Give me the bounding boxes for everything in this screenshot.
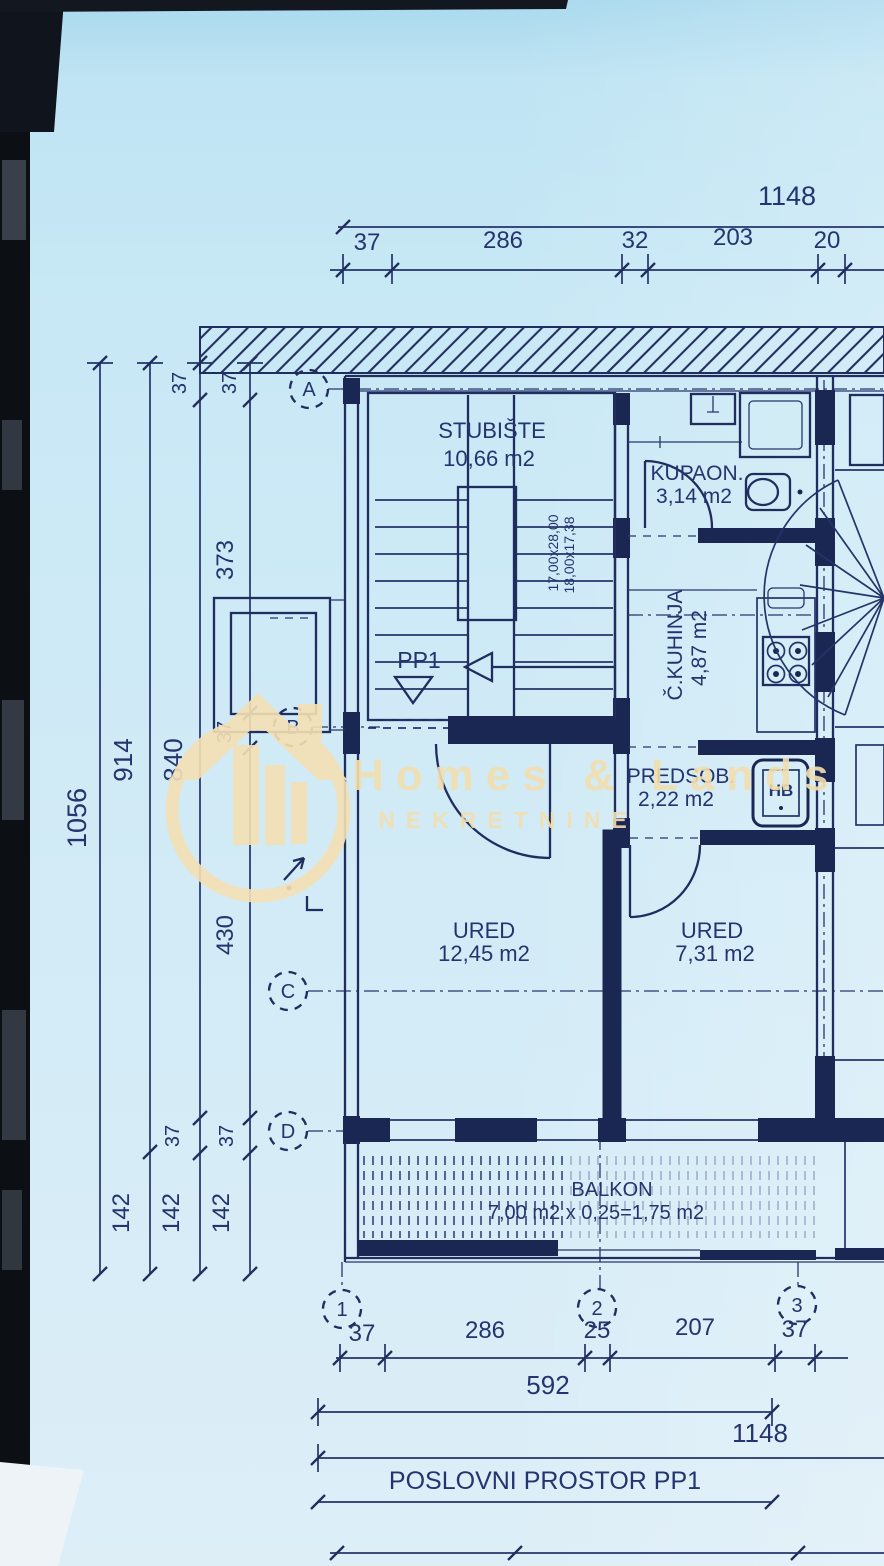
- dim-top-seg-203: 203: [713, 224, 753, 251]
- dim-bottom-1148: 1148: [732, 1418, 788, 1448]
- room-area-bathroom: 3,14 m2: [656, 485, 732, 508]
- watermark-logo-building: [265, 765, 285, 845]
- dim-bottom-seg-286: 286: [465, 1317, 505, 1344]
- stair-note-2: 18,00x17,38: [561, 516, 577, 593]
- dim-left-37: 37: [162, 1125, 184, 1147]
- wall-bathroom-bottom: [698, 528, 817, 543]
- grid-label-D: D: [281, 1121, 295, 1143]
- dim-left-total: 1056: [62, 788, 92, 848]
- dim-left-142: 142: [208, 1193, 235, 1233]
- watermark-logo-chimney: [298, 704, 322, 740]
- stair-note-1: 17,00x28,00: [545, 514, 561, 591]
- dim-bottom-seg-37: 37: [349, 1320, 376, 1347]
- room-label-stairwell: STUBIŠTE: [438, 418, 546, 443]
- wall-stair-bottom: [448, 716, 615, 744]
- balcony-hatch: [362, 1150, 567, 1238]
- room-label-bathroom: KUPAON.: [651, 462, 744, 485]
- dim-left-373: 373: [212, 540, 239, 580]
- watermark-brand: Homes & Lands: [352, 751, 841, 800]
- dim-bottom-seg-207: 207: [675, 1314, 715, 1341]
- dim-left-37: 37: [216, 1125, 238, 1147]
- dim-bottom-seg-37b: 37: [782, 1316, 809, 1343]
- room-area-office1: 12,45 m2: [438, 941, 530, 966]
- room-label-balcony: BALKON: [571, 1179, 652, 1201]
- wall-hall-bottom: [700, 830, 817, 845]
- scanned-floor-plan-photo: 1148 37 286 32 203 20 1056 914 840 373 4…: [0, 0, 884, 1566]
- dim-left-37: 37: [169, 372, 191, 394]
- watermark-logo-building: [233, 745, 259, 845]
- room-area-stairwell: 10,66 m2: [443, 446, 535, 471]
- dim-top-seg-32: 32: [622, 227, 649, 254]
- room-area-office2: 7,31 m2: [675, 941, 755, 966]
- balcony-parapet-left: [358, 1240, 558, 1256]
- grid-label-3: 3: [791, 1295, 802, 1317]
- room-label-office2: URED: [681, 918, 743, 943]
- room-area-balcony: 7,00 m2 x 0,25=1,75 m2: [488, 1202, 704, 1224]
- dim-left-142: 142: [108, 1193, 135, 1233]
- dim-bottom-592: 592: [526, 1370, 569, 1400]
- grid-label-1: 1: [336, 1299, 347, 1321]
- room-area-kitchen: 4,87 m2: [688, 610, 711, 686]
- unit-label: PP1: [397, 647, 440, 673]
- dim-top-seg-20: 20: [814, 227, 841, 254]
- dim-top-seg-37: 37: [354, 229, 381, 256]
- dim-left-914: 914: [108, 738, 138, 781]
- dim-left-430: 430: [212, 915, 239, 955]
- grid-label-C: C: [281, 981, 295, 1003]
- plan-footer-title: POSLOVNI PROSTOR PP1: [389, 1467, 701, 1495]
- watermark-tagline: NEKRETNINE: [378, 807, 638, 833]
- dim-left-142: 142: [158, 1193, 185, 1233]
- dim-top-total: 1148: [758, 181, 816, 211]
- exterior-wall-hatched: [200, 327, 884, 373]
- room-label-office1: URED: [453, 918, 515, 943]
- room-label-kitchen: Č.KUHINJA: [664, 590, 687, 701]
- floor-plan-drawing: 1148 37 286 32 203 20 1056 914 840 373 4…: [0, 0, 884, 1566]
- watermark-logo-building: [291, 782, 307, 844]
- dim-bottom-seg-25: 25: [584, 1317, 611, 1344]
- grid-label-A: A: [302, 379, 316, 401]
- dim-top-seg-286: 286: [483, 227, 523, 254]
- wall-between-offices: [603, 830, 621, 1120]
- photo-edge-corner: [0, 0, 64, 132]
- balcony-parapet-right: [700, 1250, 816, 1260]
- dim-left-37: 37: [219, 372, 241, 394]
